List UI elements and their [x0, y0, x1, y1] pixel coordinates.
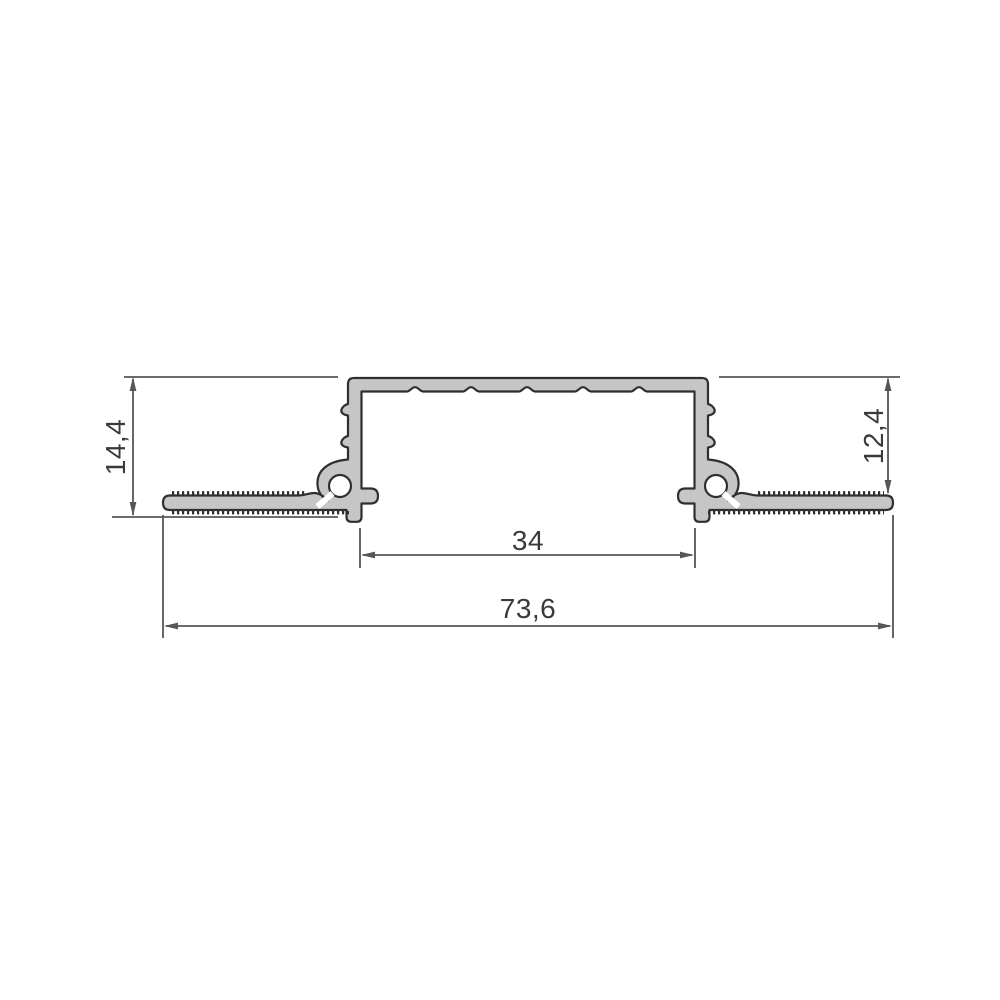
dimension-label-height-left: 14,4: [100, 419, 131, 476]
dimension-height-right: 12,4: [719, 377, 900, 494]
dimension-label-inner-width: 34: [512, 525, 544, 556]
arrowhead-up: [130, 377, 137, 391]
arrowhead-left: [164, 623, 178, 630]
technical-drawing-canvas: 14,4 12,4 34 73,6: [0, 0, 1000, 1000]
arrowhead-up: [885, 377, 892, 391]
technical-drawing: 14,4 12,4 34 73,6: [0, 0, 1000, 1000]
arrowhead-right: [878, 623, 892, 630]
arrowhead-down: [885, 480, 892, 494]
arrowhead-down: [130, 502, 137, 516]
profile-body: [163, 378, 893, 522]
dimension-label-height-right: 12,4: [858, 408, 889, 465]
dimension-label-overall-width: 73,6: [500, 593, 557, 624]
arrowhead-left: [361, 552, 375, 559]
arrowhead-right: [680, 552, 694, 559]
dimension-inner-width: 34: [360, 525, 695, 568]
